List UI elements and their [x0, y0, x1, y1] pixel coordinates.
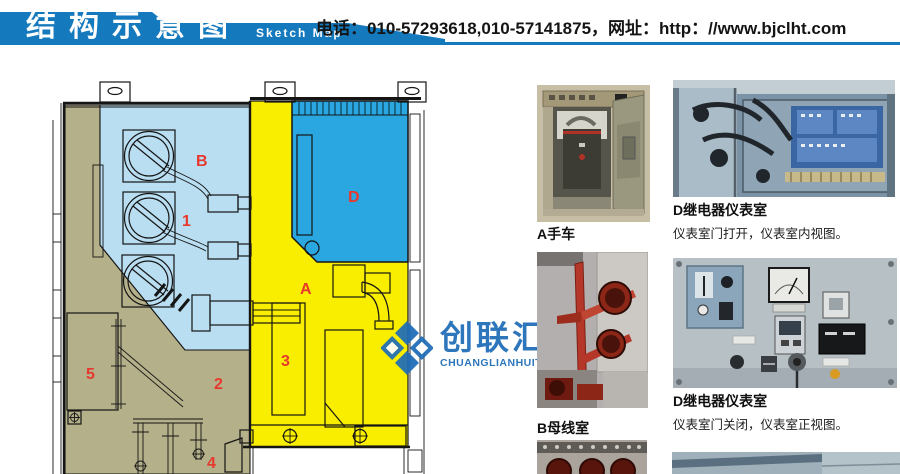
caption-photo-a: A手车	[537, 224, 575, 244]
photo-a-handcart	[537, 85, 650, 227]
photo-bottom-right-partial	[672, 452, 900, 474]
contact-info: 电话：010-57293618,010-57141875，网址：http：//w…	[316, 14, 846, 39]
header-divider	[0, 42, 900, 45]
diagram-region-label-1: 1	[182, 213, 191, 230]
page-title: 结构示意图	[26, 12, 241, 42]
diagram-region-label-A: A	[300, 281, 312, 298]
diagram-region-label-B: B	[196, 153, 208, 170]
catalog-page: 结构示意图 Sketch Map 电话：010-57293618,010-571…	[0, 0, 900, 474]
diagram-region-label-4: 4	[207, 455, 216, 472]
diagram-region-label-2: 2	[214, 376, 223, 393]
photo-d-instrument-room-open	[673, 80, 895, 202]
diagram-region-label-D: D	[348, 189, 360, 206]
caption-photo-d-open: D继电器仪表室 仪表室门打开，仪表室内视图。	[673, 200, 848, 242]
photo-d-instrument-room-closed	[673, 258, 897, 393]
structure-diagram: B1DA3254	[38, 74, 468, 474]
caption-photo-d-closed: D继电器仪表室 仪表室门关闭，仪表室正视图。	[673, 391, 848, 433]
photo-b-busbar-room	[537, 252, 648, 413]
company-logo-icon	[381, 320, 433, 376]
photo-bottom-left-partial	[537, 440, 647, 474]
diagram-region-label-5: 5	[86, 366, 95, 383]
caption-photo-b: B母线室	[537, 418, 589, 438]
diagram-region-label-3: 3	[281, 353, 290, 370]
